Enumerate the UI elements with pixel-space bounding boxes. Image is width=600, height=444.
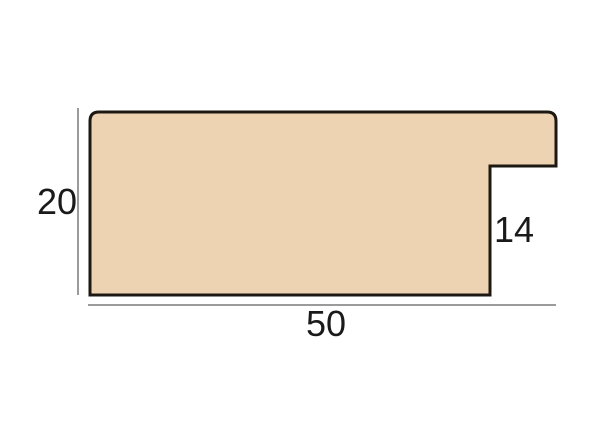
moulding-profile-shape <box>90 112 556 295</box>
rebate-dimension-label: 14 <box>494 212 534 248</box>
width-dimension-label: 50 <box>306 306 346 342</box>
moulding-profile-diagram: 20 50 14 <box>0 0 600 444</box>
height-dimension-label: 20 <box>37 184 77 220</box>
